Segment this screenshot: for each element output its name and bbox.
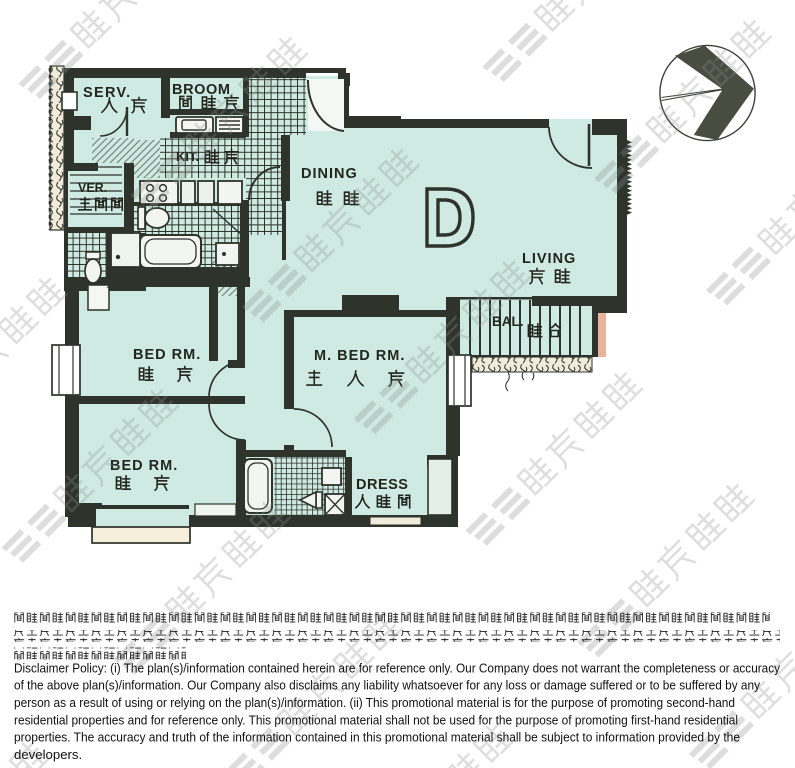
svg-text:of the above plan(s)/informati: of the above plan(s)/information. Our Co…	[14, 678, 760, 693]
svg-text:properties. The accuracy and t: properties. The accuracy and truth of th…	[14, 730, 740, 745]
svg-text:residential properties and for: residential properties and for reference…	[14, 712, 738, 727]
svg-text:Disclaimer Policy: (i) The pla: Disclaimer Policy: (i) The plan(s)/infor…	[14, 660, 780, 675]
svg-text:person as a result of using or: person as a result of using or relying o…	[14, 695, 735, 710]
svg-text:developers.: developers.	[14, 747, 82, 762]
